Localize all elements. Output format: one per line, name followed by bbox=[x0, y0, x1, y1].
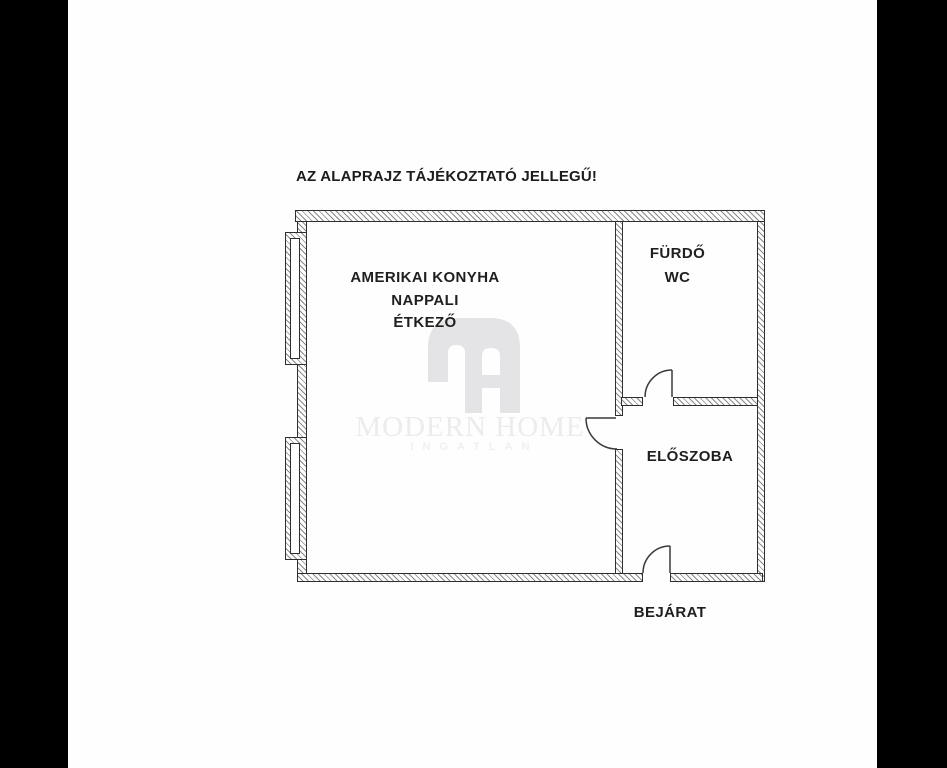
wall-divider-vertical-lower bbox=[615, 449, 623, 574]
room-label-living-line2: NAPPALI bbox=[330, 290, 520, 313]
wall-top bbox=[295, 210, 765, 222]
window-upper-frame bbox=[290, 238, 300, 359]
watermark-brand-text: MODERN HOME bbox=[345, 413, 595, 442]
room-label-living: AMERIKAI KONYHA NAPPALI ÉTKEZŐ bbox=[330, 267, 520, 335]
room-label-bathroom-line1: FÜRDŐ bbox=[620, 242, 735, 266]
window-lower-frame bbox=[290, 443, 300, 554]
wall-bath-hall-right bbox=[673, 397, 758, 406]
entrance-label: BEJÁRAT bbox=[600, 604, 740, 621]
room-label-hall: ELŐSZOBA bbox=[623, 448, 757, 465]
wall-bottom-left-of-entrance bbox=[297, 573, 643, 582]
disclaimer-text: AZ ALAPRAJZ TÁJÉKOZTATÓ JELLEGŰ! bbox=[296, 168, 597, 185]
wall-bottom-right-of-entrance bbox=[670, 573, 763, 582]
room-label-living-line3: ÉTKEZŐ bbox=[330, 312, 520, 335]
floorplan-page: MODERN HOME INGATLAN AZ ALAPRAJZ TÁJÉKOZ… bbox=[0, 0, 947, 768]
wall-bath-hall-left-stub bbox=[621, 397, 643, 406]
wall-right bbox=[757, 221, 765, 582]
room-label-bathroom: FÜRDŐ WC bbox=[620, 242, 735, 289]
watermark-sub-text: INGATLAN bbox=[345, 441, 595, 453]
room-label-bathroom-line2: WC bbox=[620, 266, 735, 290]
room-label-living-line1: AMERIKAI KONYHA bbox=[330, 267, 520, 290]
